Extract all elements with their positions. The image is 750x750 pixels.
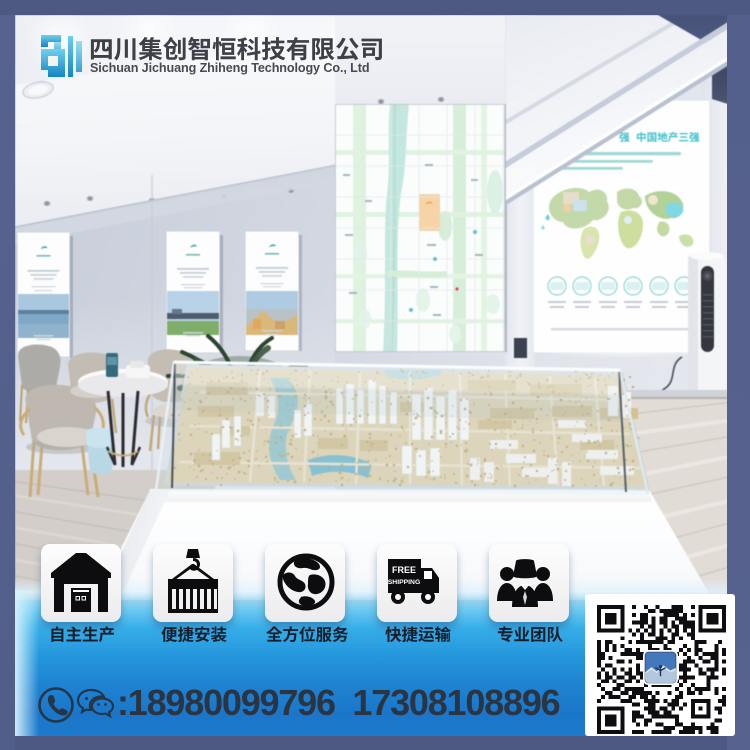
svg-text:SHIPPING: SHIPPING: [388, 579, 420, 586]
svg-text:FREE: FREE: [392, 565, 416, 575]
